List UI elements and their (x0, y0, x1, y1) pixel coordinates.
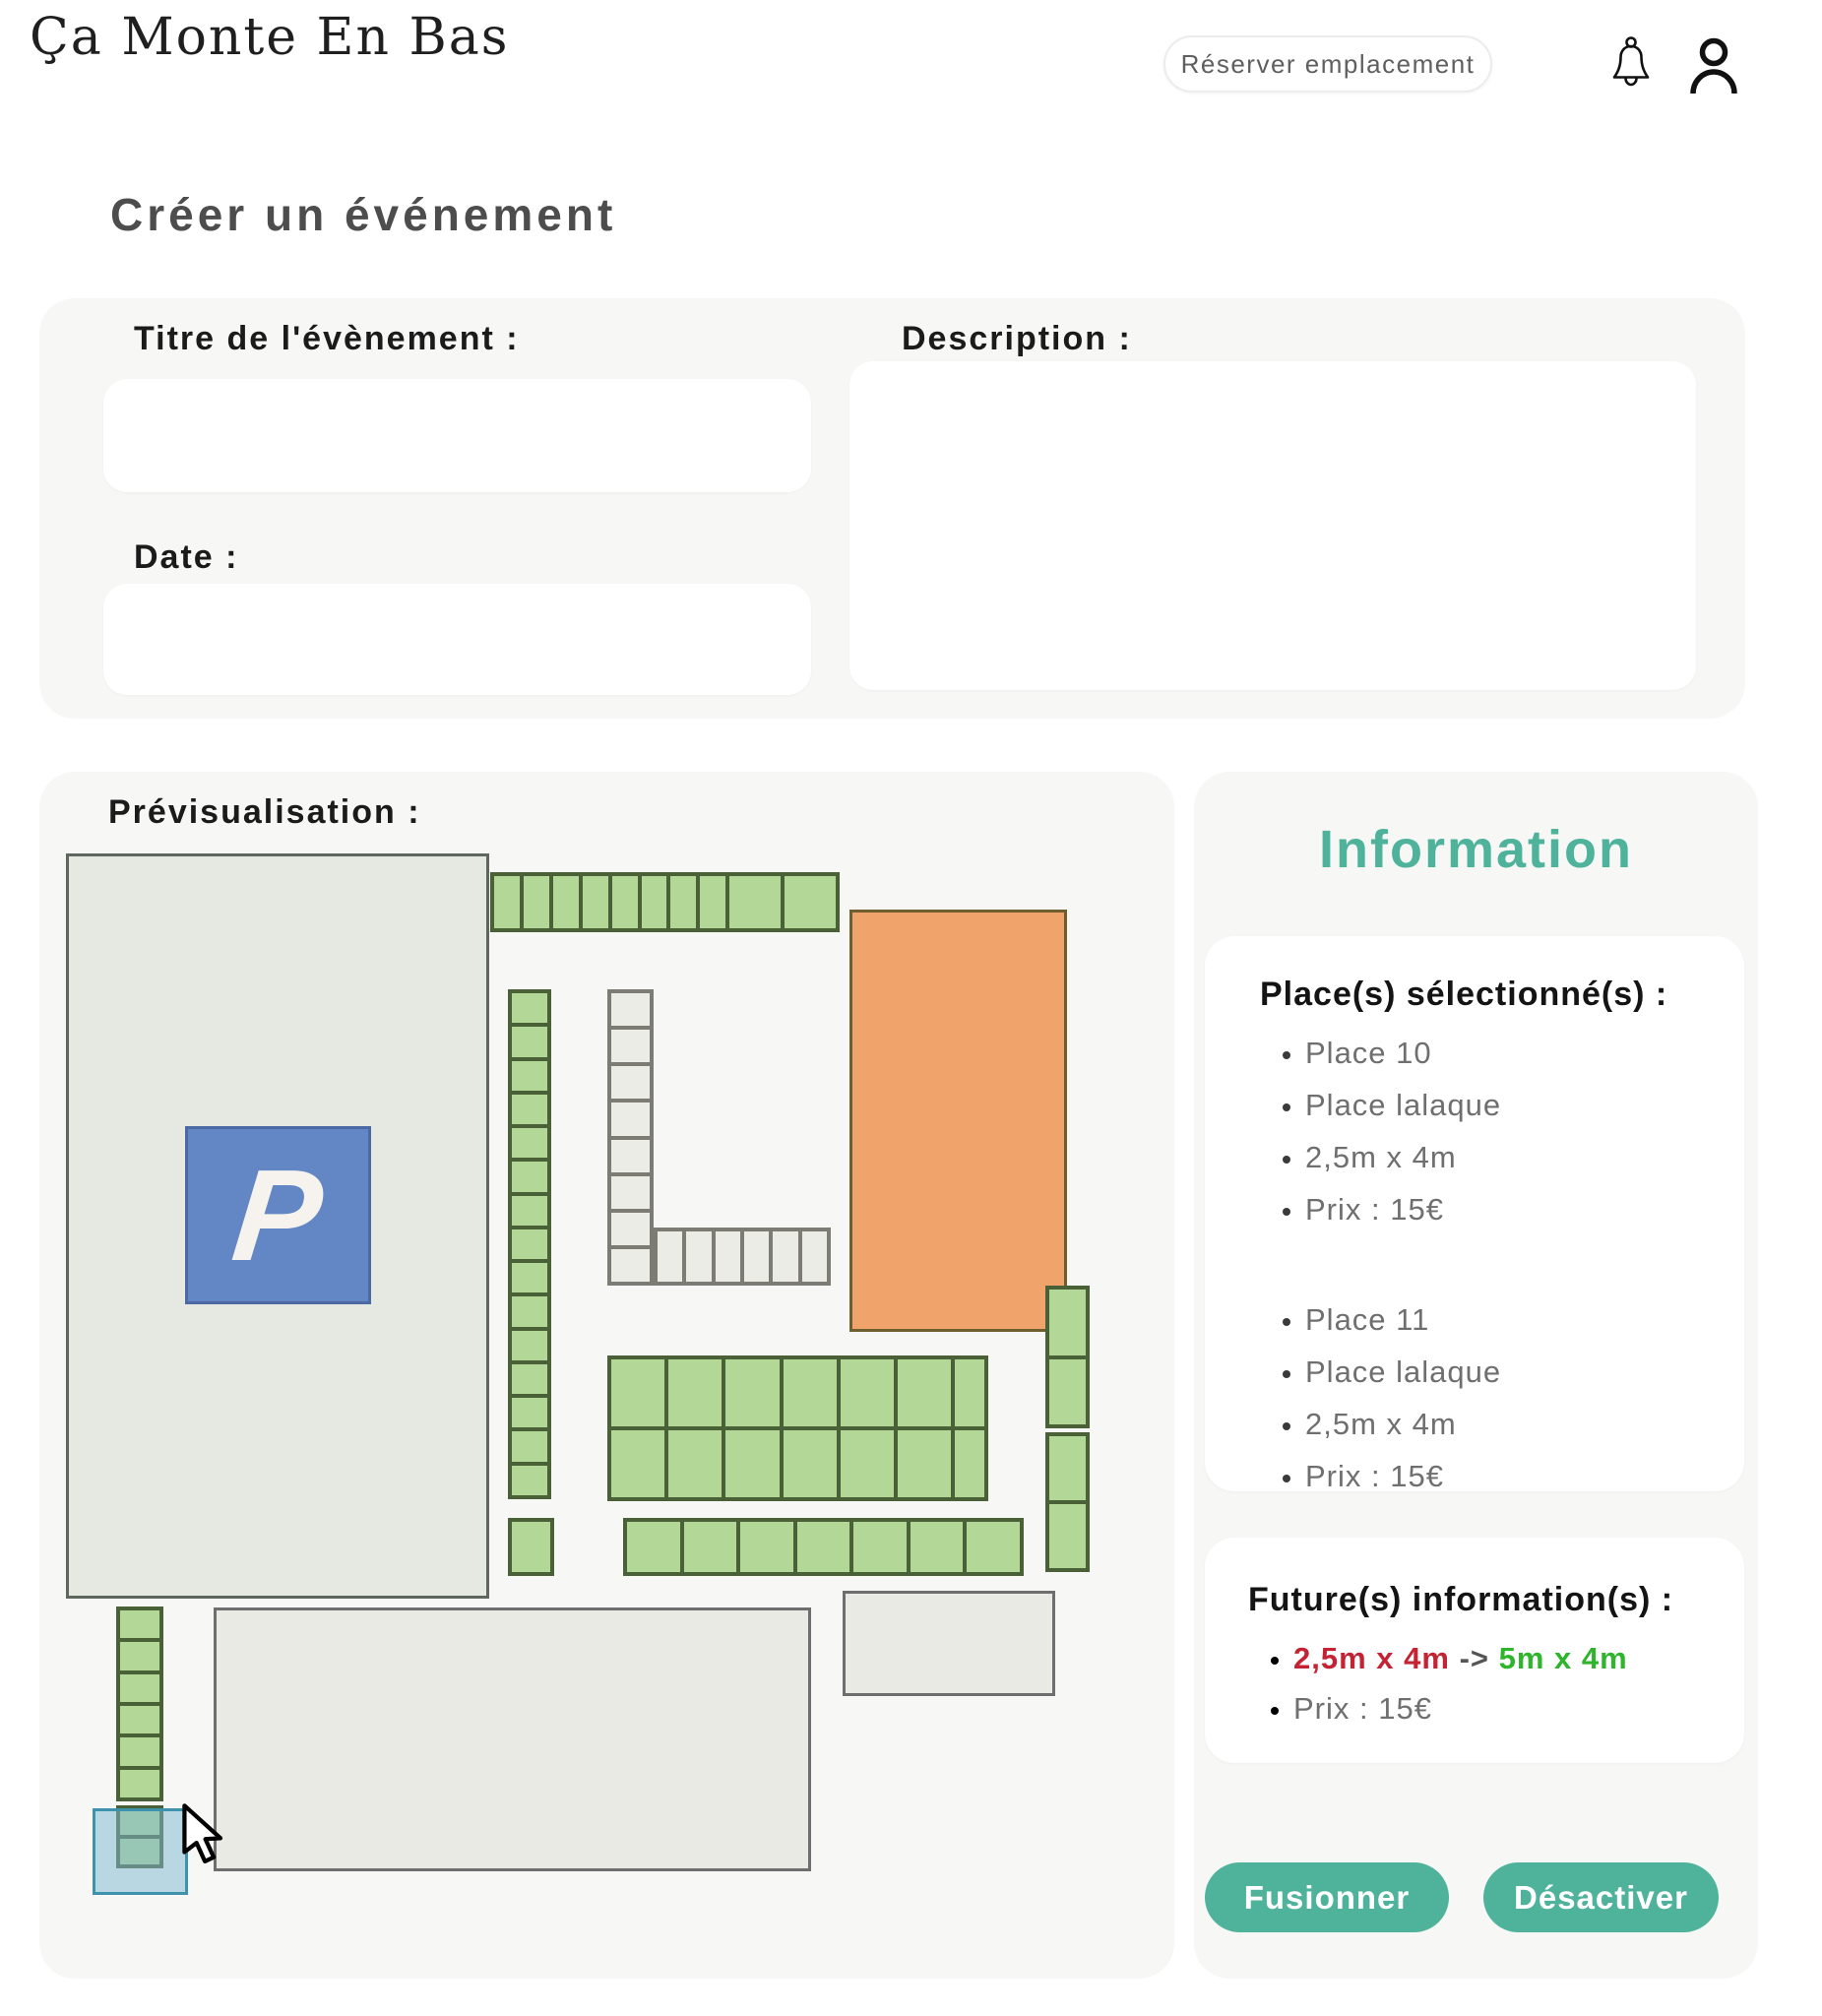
zone-grey-large (214, 1607, 811, 1871)
merge-button[interactable]: Fusionner (1205, 1862, 1449, 1932)
parking-cell[interactable] (911, 1522, 964, 1572)
parking-cell[interactable] (668, 1359, 722, 1426)
parking-cell[interactable] (955, 1359, 984, 1426)
parking-cell[interactable] (494, 876, 520, 928)
arrow-text: -> (1460, 1641, 1489, 1675)
selection-overlay (93, 1808, 188, 1895)
parking-cell[interactable] (611, 1030, 650, 1062)
parking-cell[interactable] (785, 876, 836, 928)
parking-cell[interactable] (1049, 1359, 1086, 1425)
parking-cell[interactable] (658, 1231, 682, 1282)
parking-cell[interactable] (120, 1610, 159, 1638)
size-change-item: 2,5m x 4m -> 5m x 4m (1293, 1641, 1721, 1676)
parking-cell[interactable] (686, 1231, 711, 1282)
selected-places-card: Place(s) sélectionné(s) : Place 10Place … (1205, 936, 1744, 1491)
notification-bell-button[interactable] (1608, 35, 1654, 94)
zone-orange (849, 910, 1067, 1332)
parking-letter: P (228, 1151, 329, 1281)
new-size-value: 5m x 4m (1499, 1641, 1628, 1675)
parking-cell[interactable] (611, 1066, 650, 1099)
parking-cell[interactable] (612, 876, 638, 928)
parking-cell[interactable] (642, 876, 667, 928)
info-title: Information (1194, 772, 1758, 880)
parking-cell[interactable] (955, 1430, 984, 1497)
parking-cell[interactable] (716, 1231, 740, 1282)
selected-places-heading: Place(s) sélectionné(s) : (1260, 976, 1715, 1014)
selected-places-list: Place 10Place lalaque2,5m x 4mPrix : 15€… (1260, 1036, 1715, 1494)
parking-cell[interactable] (120, 1642, 159, 1669)
parking-cell[interactable] (611, 1213, 650, 1245)
bell-icon (1608, 83, 1654, 97)
parking-cell[interactable] (684, 1522, 737, 1572)
stall-grid-middle (607, 1355, 988, 1501)
selected-place-item: 2,5m x 4m (1305, 1140, 1715, 1175)
disable-button[interactable]: Désactiver (1483, 1862, 1719, 1932)
parking-cell[interactable] (611, 1359, 664, 1426)
selected-place-item: Prix : 15€ (1305, 1192, 1715, 1228)
parking-cell[interactable] (512, 1027, 547, 1056)
parking-cell[interactable] (512, 993, 547, 1023)
parking-cell[interactable] (120, 1737, 159, 1765)
parking-cell[interactable] (512, 1061, 547, 1091)
stall-col-right-a (1045, 1286, 1090, 1428)
parking-cell[interactable] (797, 1522, 850, 1572)
future-info-list: 2,5m x 4m -> 5m x 4m Prix : 15€ (1248, 1641, 1721, 1727)
parking-cell[interactable] (729, 876, 781, 928)
parking-cell[interactable] (512, 1296, 547, 1326)
parking-cell[interactable] (898, 1430, 951, 1497)
user-icon (1689, 83, 1738, 97)
parking-cell[interactable] (967, 1522, 1020, 1572)
future-info-card: Future(s) information(s) : 2,5m x 4m -> … (1205, 1538, 1744, 1763)
parking-cell[interactable] (784, 1359, 837, 1426)
selected-place-item: Prix : 15€ (1305, 1459, 1715, 1494)
stall-row-grey (654, 1228, 831, 1286)
parking-cell[interactable] (668, 1430, 722, 1497)
parking-cell[interactable] (898, 1359, 951, 1426)
parking-cell[interactable] (583, 876, 608, 928)
parking-cell[interactable] (670, 876, 696, 928)
parking-cell[interactable] (512, 1162, 547, 1191)
stall-col-grey (607, 989, 654, 1286)
event-date-label: Date : (134, 538, 238, 577)
parking-cell[interactable] (802, 1231, 827, 1282)
parking-cell[interactable] (512, 1196, 547, 1226)
parking-cell[interactable] (700, 876, 725, 928)
parking-cell[interactable] (524, 876, 549, 928)
parking-cell[interactable] (120, 1706, 159, 1733)
parking-cell[interactable] (725, 1430, 779, 1497)
preview-panel: Prévisualisation : P (39, 772, 1174, 1979)
page: Ça Monte En Bas Réserver emplacement Cré… (0, 0, 1822, 2016)
info-panel: Information Place(s) sélectionné(s) : Pl… (1194, 772, 1758, 1979)
parking-cell[interactable] (1049, 1504, 1086, 1568)
parking-cell[interactable] (611, 1102, 650, 1135)
list-group-gap (1305, 1244, 1715, 1286)
stall-col-bottom-left (116, 1606, 163, 1801)
parking-p-sign: P (185, 1126, 371, 1304)
event-title-label: Titre de l'évènement : (134, 320, 520, 358)
event-description-input[interactable] (849, 361, 1696, 690)
parking-cell[interactable] (120, 1674, 159, 1702)
parking-cell[interactable] (740, 1522, 793, 1572)
parking-cell[interactable] (1049, 1436, 1086, 1500)
parking-cell[interactable] (512, 1095, 547, 1124)
app-logo[interactable]: Ça Monte En Bas (30, 8, 509, 67)
event-date-input[interactable] (103, 584, 811, 695)
parking-cell[interactable] (784, 1430, 837, 1497)
parking-cell[interactable] (611, 1140, 650, 1172)
event-title-input[interactable] (103, 379, 811, 492)
parking-cell[interactable] (1049, 1290, 1086, 1355)
selected-place-item: Place lalaque (1305, 1088, 1715, 1123)
old-size-value: 2,5m x 4m (1293, 1641, 1450, 1675)
future-price-item: Prix : 15€ (1293, 1691, 1721, 1727)
parking-cell[interactable] (841, 1359, 894, 1426)
stall-row-top (490, 872, 840, 932)
parking-cell[interactable] (120, 1770, 159, 1797)
parking-cell[interactable] (773, 1231, 797, 1282)
parking-cell[interactable] (841, 1430, 894, 1497)
selected-place-item: Place lalaque (1305, 1354, 1715, 1390)
parking-cell[interactable] (744, 1231, 769, 1282)
zone-grey-small (843, 1591, 1055, 1696)
parking-cell[interactable] (512, 1522, 550, 1572)
parking-cell[interactable] (611, 1176, 650, 1209)
future-info-heading: Future(s) information(s) : (1248, 1581, 1721, 1619)
selected-place-item: 2,5m x 4m (1305, 1407, 1715, 1442)
event-description-label: Description : (902, 320, 1132, 358)
selected-place-item: Place 10 (1305, 1036, 1715, 1071)
parking-cell[interactable] (512, 1331, 547, 1360)
parking-cell[interactable] (512, 1431, 547, 1461)
parking-cell[interactable] (725, 1359, 779, 1426)
parking-cell[interactable] (512, 1128, 547, 1158)
reserve-spot-button[interactable]: Réserver emplacement (1163, 35, 1492, 93)
parking-cell[interactable] (512, 1398, 547, 1427)
stall-col-right-b (1045, 1432, 1090, 1572)
stall-col-left (508, 989, 551, 1499)
selected-place-item: Place 11 (1305, 1302, 1715, 1338)
preview-label: Prévisualisation : (108, 793, 421, 832)
parking-cell[interactable] (553, 876, 579, 928)
parking-cell[interactable] (512, 1229, 547, 1259)
stall-cell-solo (508, 1518, 554, 1576)
page-title: Créer un événement (110, 188, 616, 241)
parking-cell[interactable] (512, 1466, 547, 1495)
stall-row-bottom (623, 1518, 1024, 1576)
parking-cell[interactable] (611, 1249, 650, 1282)
parking-cell[interactable] (512, 1364, 547, 1394)
user-account-button[interactable] (1689, 37, 1738, 94)
parking-cell[interactable] (627, 1522, 680, 1572)
parking-cell[interactable] (512, 1263, 547, 1292)
parking-cell[interactable] (611, 993, 650, 1026)
parking-cell[interactable] (611, 1430, 664, 1497)
event-form-panel: Titre de l'évènement : Date : Descriptio… (39, 298, 1745, 719)
parking-cell[interactable] (853, 1522, 907, 1572)
